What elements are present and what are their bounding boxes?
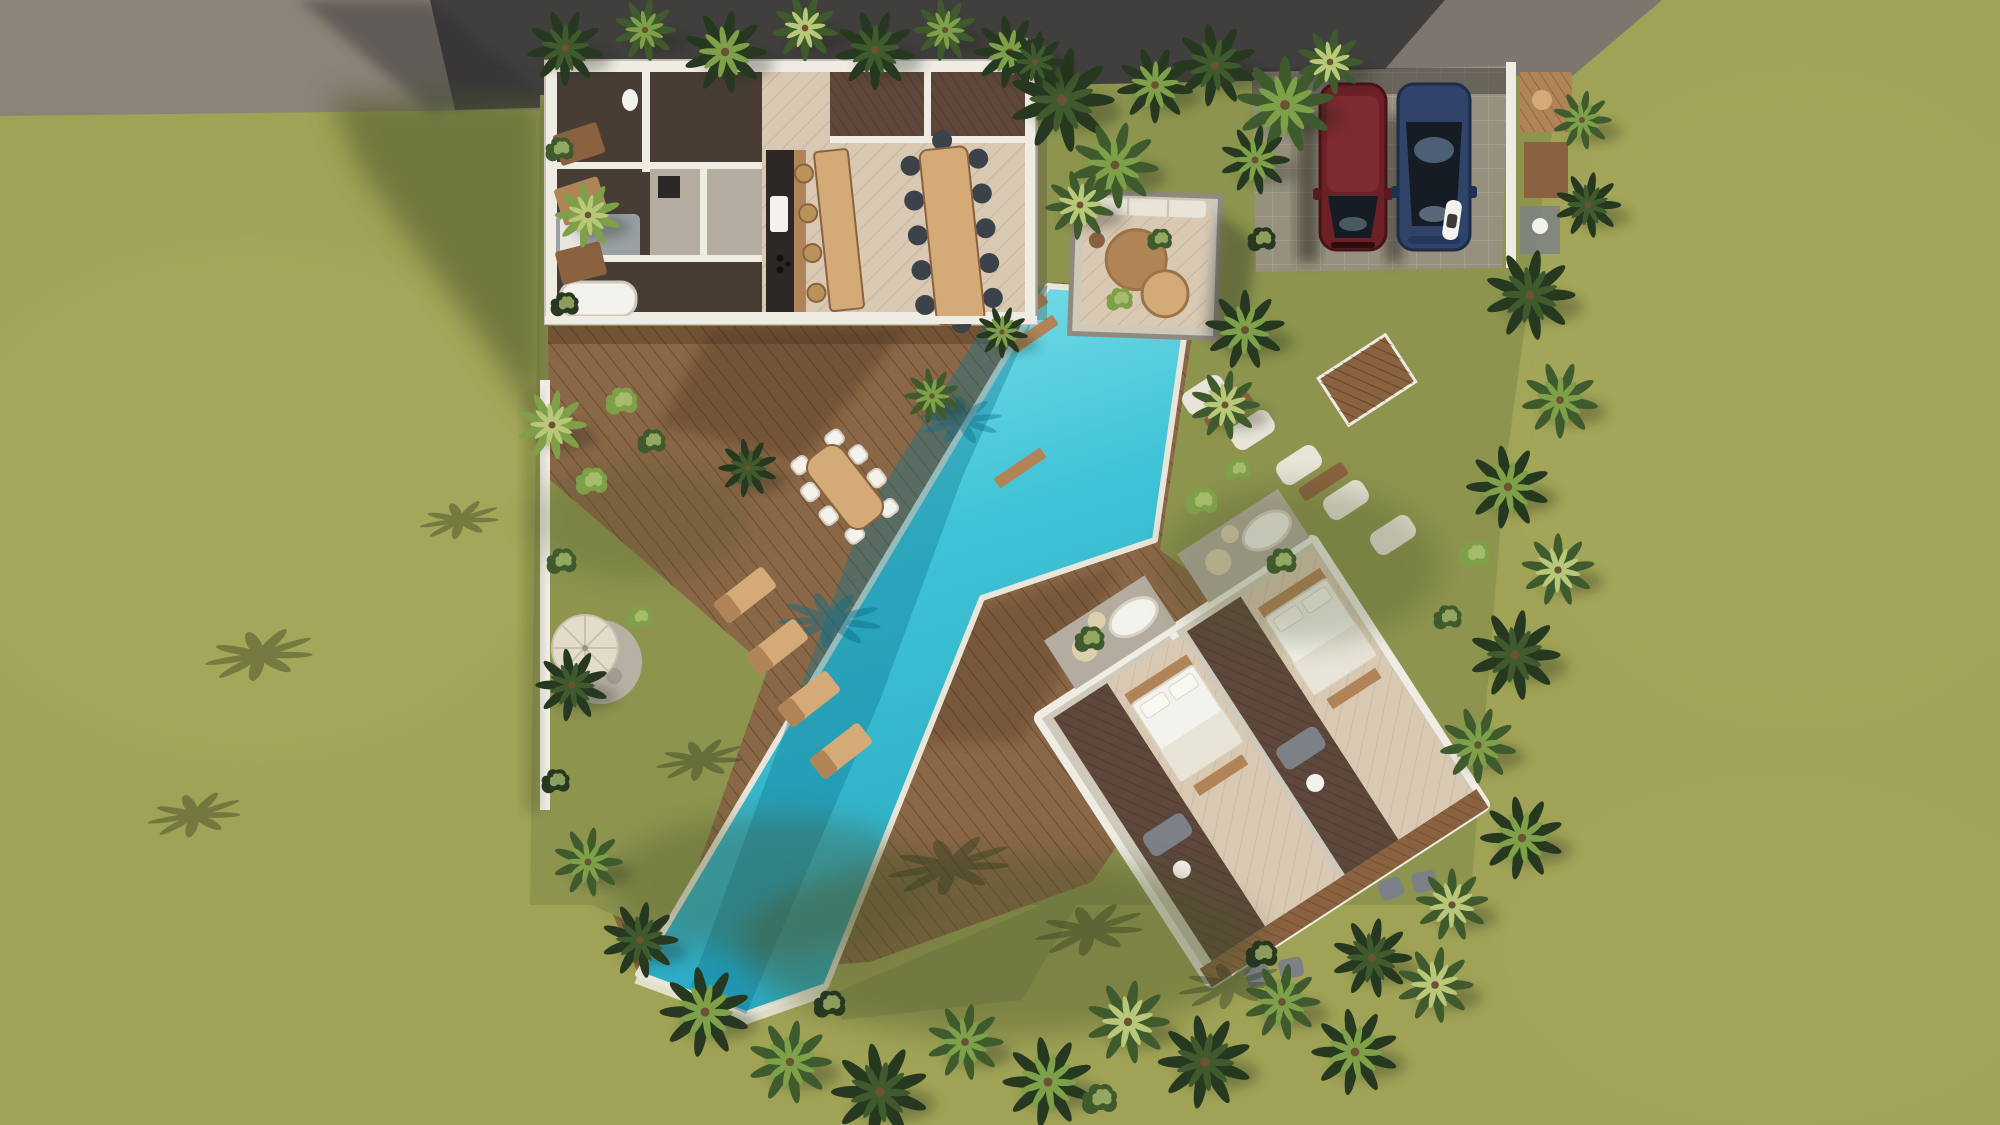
toilet <box>622 89 638 111</box>
aerial-villa-render <box>0 0 2000 1125</box>
main-villa <box>545 60 1047 338</box>
site-plan-canvas <box>0 0 2000 1125</box>
villa-south-wall <box>545 316 1037 324</box>
round-table-small <box>1141 270 1189 318</box>
bathroom-sink <box>658 176 680 198</box>
kitchen-sink <box>770 196 788 232</box>
mirror-left <box>1391 186 1399 198</box>
entry-planter <box>1532 218 1548 234</box>
wall-cast-shadow <box>524 392 540 812</box>
windshield-glare <box>1339 217 1367 231</box>
mirror-left <box>1313 188 1321 200</box>
car-blue <box>1391 84 1477 250</box>
entry-table <box>1532 90 1552 110</box>
roof-glass-reflection <box>1414 137 1454 163</box>
mirror-right <box>1469 186 1477 198</box>
